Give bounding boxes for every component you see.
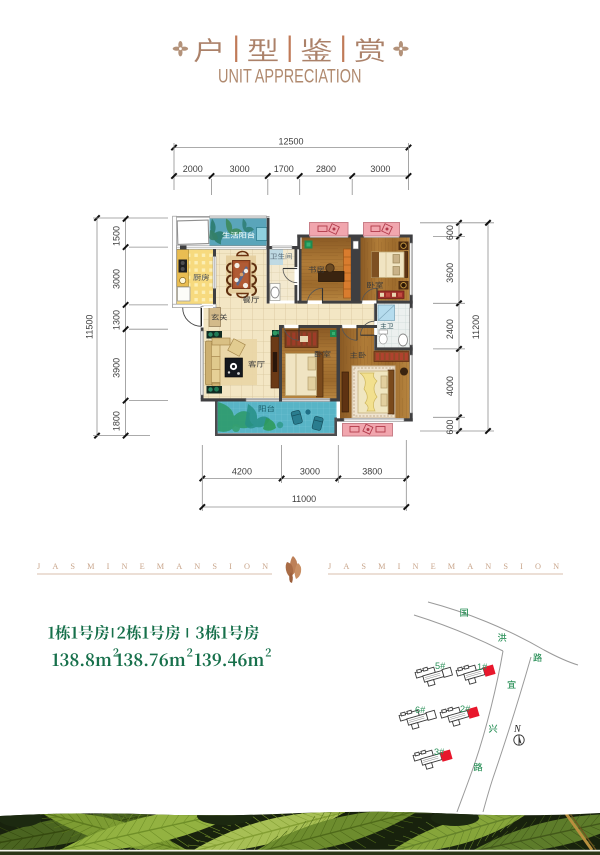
svg-text:1800: 1800 <box>112 411 122 431</box>
svg-text:3000: 3000 <box>370 164 390 174</box>
svg-text:3600: 3600 <box>445 263 455 283</box>
svg-text:UNIT APPRECIATION: UNIT APPRECIATION <box>218 66 362 88</box>
svg-text:4000: 4000 <box>445 376 455 396</box>
svg-text:2400: 2400 <box>445 319 455 339</box>
svg-text:11500: 11500 <box>85 315 95 339</box>
svg-text:1#: 1# <box>477 662 488 672</box>
svg-text:600: 600 <box>445 420 455 435</box>
svg-text:3#: 3# <box>434 747 445 757</box>
svg-text:2000: 2000 <box>183 164 203 174</box>
svg-text:JASMINEMANSION: JASMINEMANSION <box>37 562 280 571</box>
svg-text:1700: 1700 <box>274 164 294 174</box>
svg-text:3800: 3800 <box>362 467 382 477</box>
svg-text:3900: 3900 <box>112 358 122 378</box>
svg-text:3000: 3000 <box>300 467 320 477</box>
svg-text:11200: 11200 <box>471 315 481 339</box>
svg-text:2800: 2800 <box>316 164 336 174</box>
svg-text:N: N <box>513 724 522 735</box>
svg-text:1500: 1500 <box>112 226 122 246</box>
svg-text:4200: 4200 <box>232 467 252 477</box>
svg-text:600: 600 <box>445 225 455 240</box>
svg-text:JASMINEMANSION: JASMINEMANSION <box>328 562 571 571</box>
svg-text:2#: 2# <box>460 704 471 714</box>
svg-text:12500: 12500 <box>278 137 303 147</box>
svg-text:6#: 6# <box>415 705 426 715</box>
svg-text:11000: 11000 <box>292 494 316 504</box>
svg-text:3000: 3000 <box>112 269 122 289</box>
svg-text:5#: 5# <box>435 661 446 671</box>
svg-text:3000: 3000 <box>230 164 250 174</box>
svg-text:1300: 1300 <box>112 310 122 330</box>
